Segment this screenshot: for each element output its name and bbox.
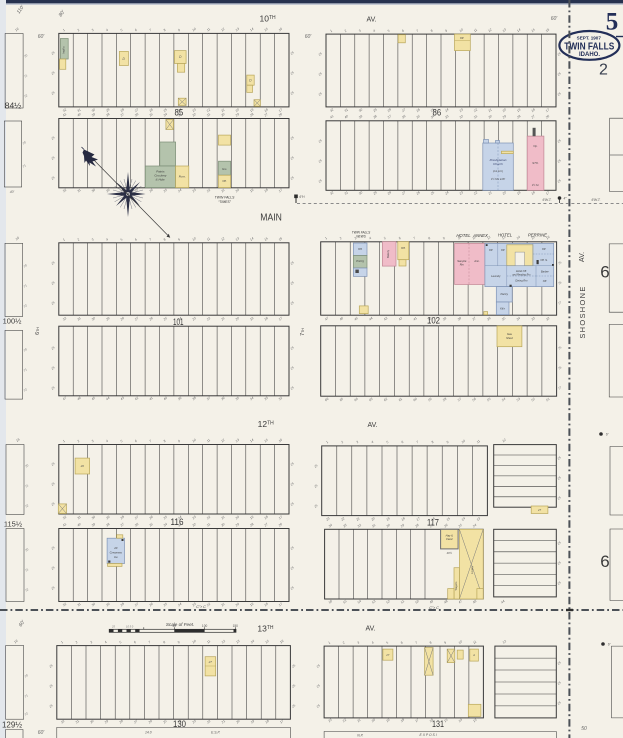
svg-text:Gro.: Gro.	[222, 167, 227, 171]
svg-text:C°r C: C°r C	[196, 604, 206, 609]
svg-text:60′: 60′	[38, 730, 46, 736]
svg-text:Ice: Ice	[114, 555, 118, 559]
svg-text:Livery: Livery	[470, 566, 474, 575]
svg-text:Off. S.: Off. S.	[540, 258, 548, 262]
svg-text:Impl'ts: Impl'ts	[61, 46, 65, 54]
svg-text:NEWS: NEWS	[356, 235, 366, 239]
svg-text:6′: 6′	[608, 643, 611, 647]
svg-text:AV.: AV.	[579, 252, 586, 262]
svg-text:6″H: 6″H	[299, 195, 305, 199]
svg-text:Off.: Off.	[489, 248, 493, 252]
svg-text:Dining Rm: Dining Rm	[515, 279, 528, 283]
svg-text:and Reading Rm: and Reading Rm	[512, 273, 530, 276]
svg-text:Sample: Sample	[457, 259, 467, 263]
svg-text:Print'g: Print'g	[356, 259, 364, 263]
svg-text:SEPT. 1907: SEPT. 1907	[577, 35, 602, 40]
svg-text:150: 150	[233, 624, 239, 628]
svg-text:Bakery: Bakery	[386, 249, 390, 258]
svg-text:Wagons: Wagons	[455, 581, 458, 590]
svg-text:Kit'n: Kit'n	[500, 307, 506, 311]
svg-text:27: 27	[537, 508, 542, 512]
svg-text:6′W.T.: 6′W.T.	[543, 198, 552, 202]
svg-text:6′: 6′	[606, 433, 609, 437]
svg-text:60′: 60′	[305, 34, 313, 40]
svg-text:129½: 129½	[2, 721, 22, 730]
svg-text:100½: 100½	[3, 317, 23, 326]
svg-text:Laundry: Laundry	[491, 274, 501, 278]
svg-text:60′: 60′	[551, 16, 559, 22]
svg-text:131: 131	[432, 719, 444, 729]
svg-text:Furn.: Furn.	[179, 175, 186, 179]
svg-text:20: 20	[80, 464, 85, 468]
svg-text:(not incl.): (not incl.)	[493, 170, 503, 173]
svg-text:Off.: Off.	[401, 246, 406, 250]
svg-text:40′: 40′	[10, 190, 15, 194]
svg-text:TWIN FALLS: TWIN FALLS	[564, 41, 614, 53]
svg-text:115½: 115½	[4, 520, 23, 529]
svg-text:AV.: AV.	[367, 422, 377, 429]
svg-text:Shed: Shed	[506, 336, 513, 340]
svg-text:Church: Church	[493, 162, 503, 166]
svg-text:IDAHO.: IDAHO.	[579, 52, 600, 58]
svg-text:Rm: Rm	[460, 263, 465, 267]
svg-text:AV.: AV.	[365, 625, 375, 632]
svg-text:E X P O S I: E X P O S I	[419, 733, 436, 737]
svg-text:TWIN FALLS: TWIN FALLS	[215, 196, 235, 200]
svg-text:27: 27	[208, 660, 213, 664]
svg-text:6: 6	[600, 552, 609, 571]
svg-text:N.P.: N.P.	[357, 734, 363, 738]
svg-text:101: 101	[173, 317, 184, 327]
svg-text:27: 27	[385, 653, 390, 657]
svg-text:46½: 46½	[447, 551, 453, 555]
svg-text:50: 50	[581, 726, 587, 732]
svg-text:Hay &: Hay &	[446, 534, 454, 538]
svg-text:130: 130	[173, 719, 186, 729]
svg-text:Op.: Op.	[533, 144, 538, 148]
svg-text:Off.: Off.	[501, 248, 505, 252]
svg-text:Hotel Off.: Hotel Off.	[516, 269, 527, 273]
svg-text:102: 102	[427, 316, 440, 326]
svg-text:Scale of Feet.: Scale of Feet.	[166, 622, 194, 627]
svg-text:“TIMES”: “TIMES”	[218, 200, 231, 204]
svg-text:Barber: Barber	[541, 270, 549, 274]
svg-text:1½ St.: 1½ St.	[532, 183, 540, 187]
svg-text:Off.: Off.	[543, 279, 547, 283]
svg-text:Feed: Feed	[446, 537, 453, 541]
svg-text:Off.: Off.	[358, 247, 363, 251]
svg-text:STO.: STO.	[532, 161, 539, 165]
svg-text:5: 5	[606, 9, 619, 36]
svg-text:6: 6	[600, 263, 609, 282]
svg-text:& Hdw.: & Hdw.	[156, 178, 166, 182]
svg-text:Creamery: Creamery	[110, 551, 123, 555]
svg-text:Ann.: Ann.	[473, 259, 480, 263]
svg-text:A: A	[472, 653, 475, 657]
svg-text:25: 25	[111, 625, 115, 629]
svg-text:50: 50	[173, 624, 177, 628]
svg-text:100: 100	[202, 624, 208, 628]
svg-text:Off.: Off.	[542, 247, 546, 251]
svg-text:MAIN: MAIN	[260, 213, 282, 224]
svg-text:60′: 60′	[38, 34, 46, 40]
svg-text:HOTEL: HOTEL	[498, 233, 513, 238]
svg-text:SHOSHONE: SHOSHONE	[578, 285, 587, 338]
svg-text:6′W.T.: 6′W.T.	[592, 198, 601, 202]
svg-text:1½ St's & B'l: 1½ St's & B'l	[491, 177, 505, 181]
svg-text:HOTEL: HOTEL	[456, 233, 471, 238]
svg-text:Off.: Off.	[222, 179, 226, 183]
svg-text:20: 20	[113, 546, 118, 550]
svg-text:ANNEX: ANNEX	[472, 233, 488, 238]
svg-text:C°r C: C°r C	[429, 605, 439, 610]
svg-text:Pantry: Pantry	[500, 292, 508, 296]
svg-text:Off.: Off.	[460, 36, 464, 40]
svg-text:10 5 0: 10 5 0	[126, 625, 134, 629]
svg-text:E.S.P.: E.S.P.	[211, 731, 220, 735]
svg-text:14.0: 14.0	[145, 731, 152, 735]
svg-text:84½: 84½	[5, 101, 22, 111]
svg-text:AV.: AV.	[366, 17, 376, 24]
svg-text:PERRINE: PERRINE	[528, 233, 547, 238]
svg-text:2: 2	[599, 62, 608, 79]
